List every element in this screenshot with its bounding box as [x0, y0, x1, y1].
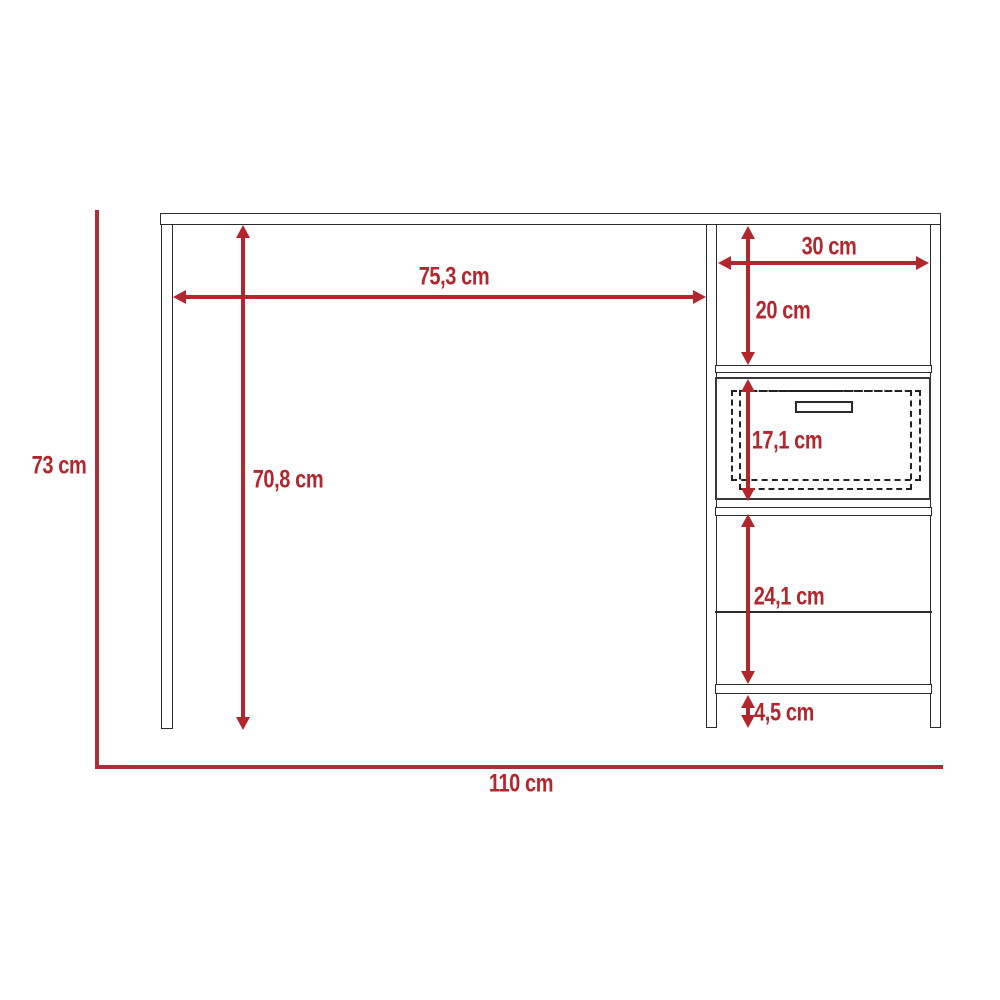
lower-compartment-height-label: 24,1 cm	[754, 583, 825, 612]
base-clearance-height-label: 4,5 cm	[754, 699, 814, 728]
upper-shelf-panel	[715, 365, 932, 373]
desk-opening-width-label: 75,3 cm	[419, 263, 490, 292]
bottom-shelf-panel	[715, 684, 932, 694]
dimension-diagram: 75,3 cm 70,8 cm 30 cm 20 cm 17,1 cm 24,1…	[0, 0, 1000, 1000]
overall-height-line	[95, 210, 99, 768]
desk-opening-height-label: 70,8 cm	[253, 466, 324, 495]
left-side-panel	[161, 224, 173, 729]
drawer-height-label: 17,1 cm	[752, 427, 823, 456]
desk-top-panel	[160, 213, 941, 225]
side-unit-width-label: 30 cm	[802, 233, 857, 262]
overall-height-label: 73 cm	[32, 452, 87, 481]
drawer-handle	[795, 401, 853, 413]
top-compartment-height-label: 20 cm	[756, 297, 811, 326]
overall-width-line	[95, 765, 943, 769]
right-side-panel	[930, 224, 941, 728]
overall-width-label: 110 cm	[489, 770, 553, 799]
